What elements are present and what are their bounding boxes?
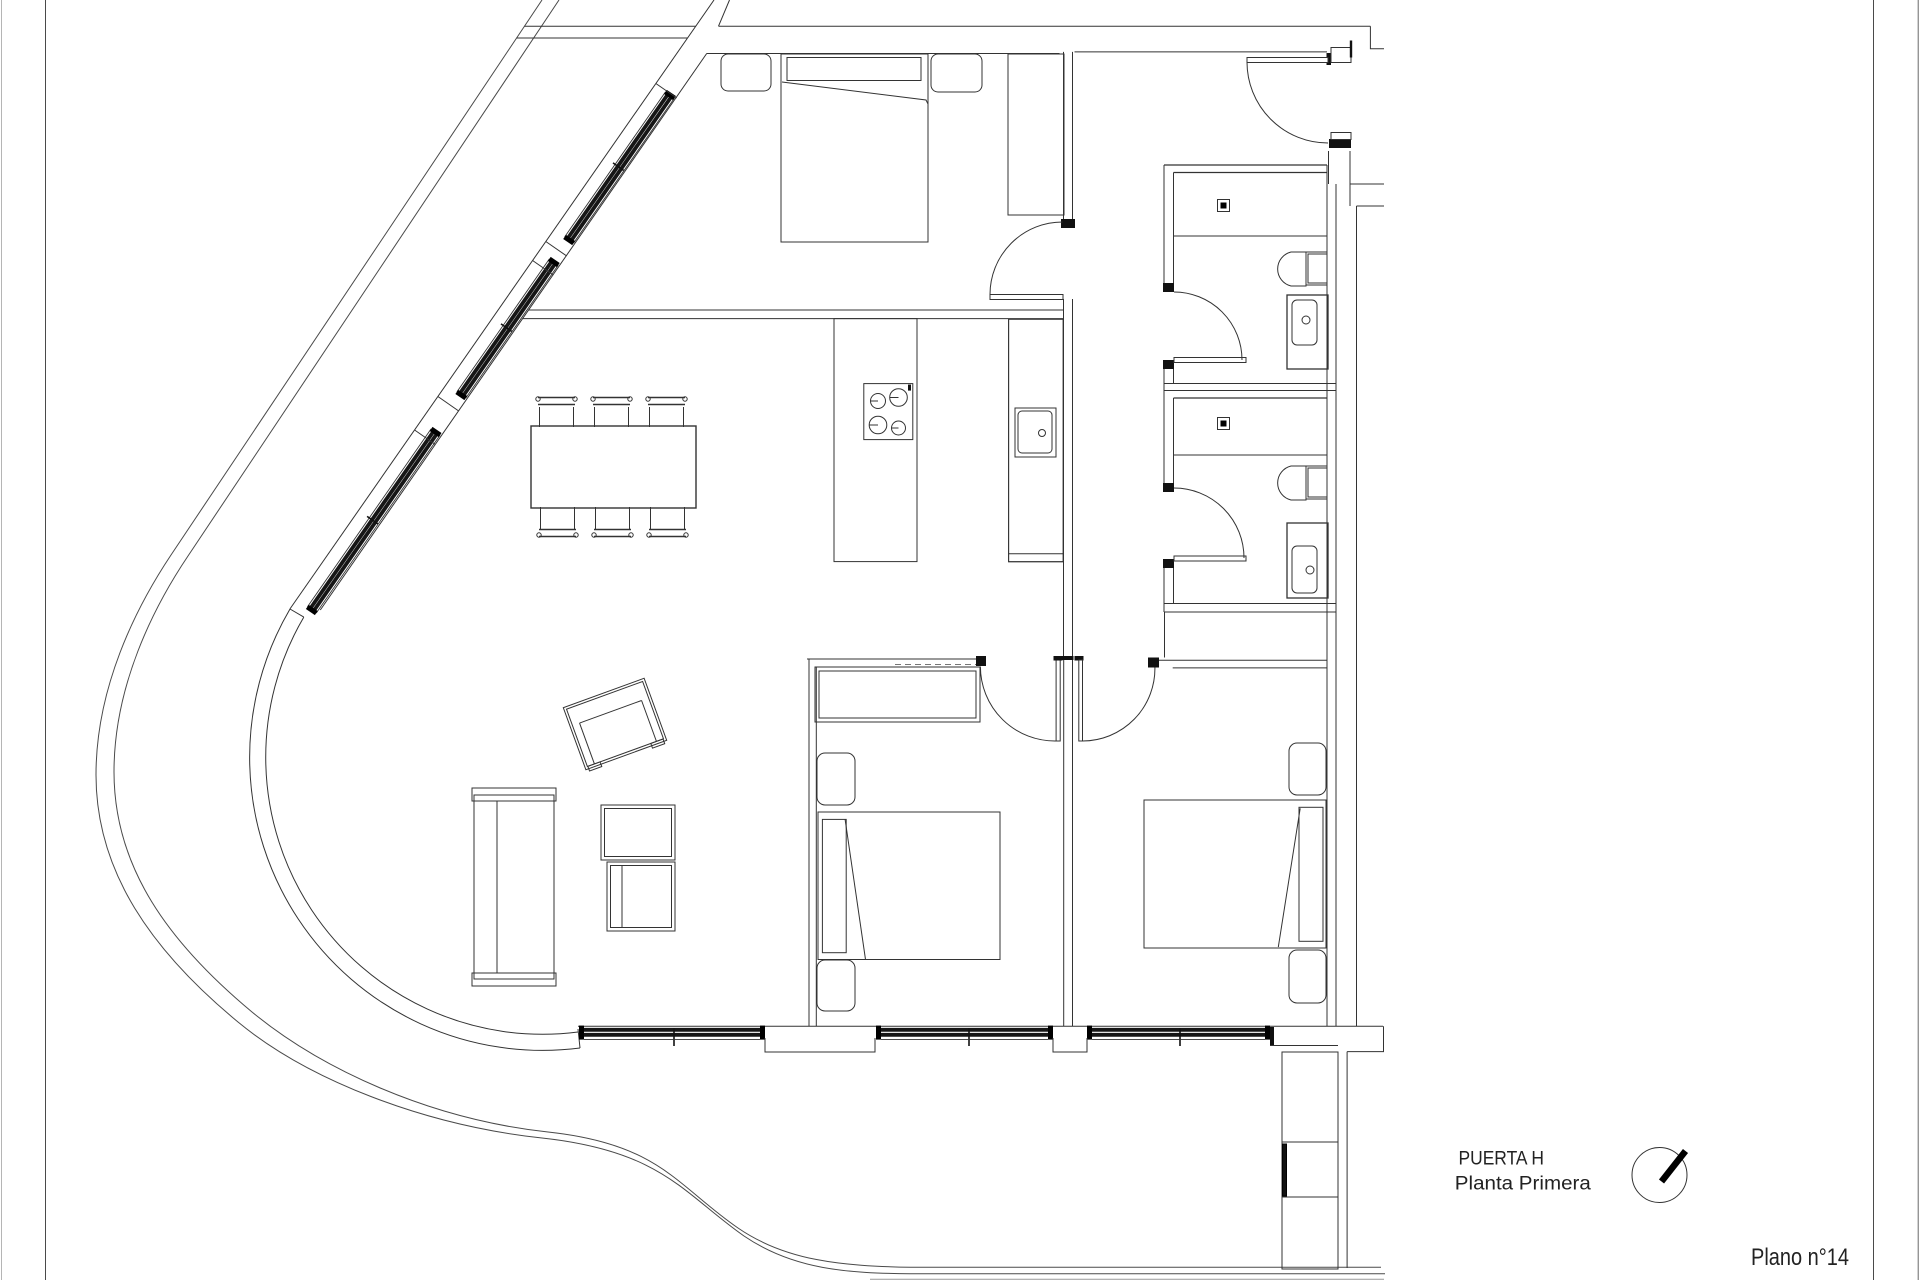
svg-text:Plano n°14: Plano n°14 (1751, 1244, 1849, 1271)
svg-text:Planta Primera: Planta Primera (1455, 1173, 1591, 1194)
svg-text:PUERTA H: PUERTA H (1459, 1149, 1545, 1170)
